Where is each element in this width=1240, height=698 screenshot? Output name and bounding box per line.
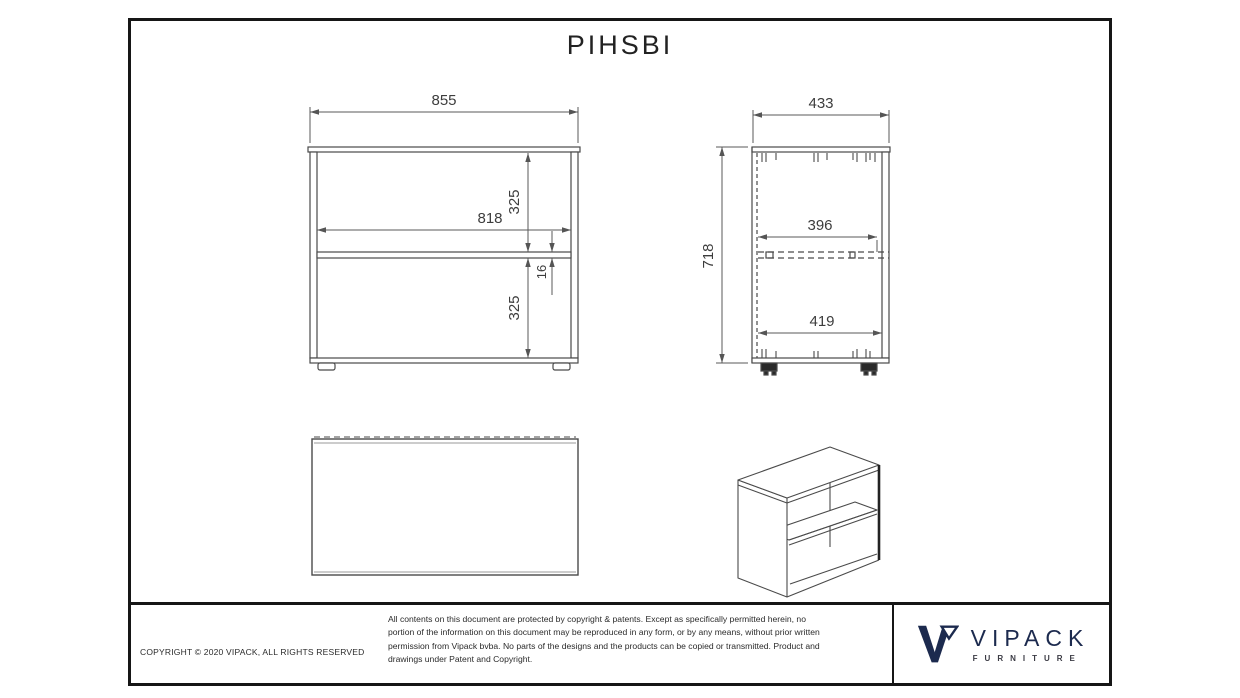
- dim-label-front-lower-opening: 325: [506, 295, 523, 320]
- iso-bottom-inner-edge: [790, 554, 877, 584]
- side-bottom-dowels: [762, 349, 870, 358]
- vipack-logo-icon: [917, 624, 959, 664]
- dim-label-side-depth: 433: [808, 95, 833, 112]
- technical-drawing: 855 325 818 16 325: [0, 0, 1240, 698]
- top-view: [312, 437, 578, 575]
- dim-label-shelf-depth: 396: [807, 217, 832, 234]
- side-view: [752, 147, 890, 375]
- brand-text: VIPACK FURNITURE: [971, 625, 1090, 663]
- side-front-foot: [861, 363, 877, 371]
- shelf-fitting-right: [850, 252, 855, 258]
- top-view-outline: [312, 439, 578, 575]
- side-front-panel: [882, 152, 889, 358]
- dim-label-front-inner-width: 818: [477, 210, 502, 227]
- dim-label-shelf-thickness: 16: [534, 265, 549, 279]
- side-bottom-panel: [752, 358, 889, 363]
- front-top-panel: [308, 147, 580, 152]
- brand-logo: VIPACK FURNITURE: [894, 605, 1112, 683]
- side-back-foot: [761, 363, 777, 371]
- iso-bottom-front-edge: [787, 560, 879, 597]
- dim-label-side-height: 718: [700, 243, 717, 268]
- isometric-view: [738, 447, 879, 597]
- front-middle-shelf: [317, 252, 571, 258]
- drawing-sheet: PIHSBI 855 325 818: [0, 0, 1240, 698]
- side-top-dowels: [762, 153, 875, 162]
- dim-label-side-bottom-depth: 419: [809, 313, 834, 330]
- front-right-foot: [553, 363, 570, 370]
- shelf-fitting-left: [766, 252, 773, 258]
- front-left-panel: [310, 152, 317, 358]
- side-top-panel: [752, 147, 890, 152]
- copyright-text: COPYRIGHT © 2020 VIPACK, ALL RIGHTS RESE…: [140, 647, 390, 657]
- front-left-foot: [318, 363, 335, 370]
- brand-tagline: FURNITURE: [973, 654, 1082, 663]
- front-bottom-panel: [310, 358, 578, 363]
- front-view-dimensions: [310, 107, 578, 358]
- front-view: [308, 147, 580, 370]
- brand-name: VIPACK: [971, 625, 1090, 652]
- dim-label-front-width: 855: [431, 92, 456, 109]
- iso-left-side-panel: [738, 480, 787, 597]
- disclaimer-text: All contents on this document are protec…: [388, 613, 828, 666]
- dim-label-front-upper-opening: 325: [506, 189, 523, 214]
- front-right-panel: [571, 152, 578, 358]
